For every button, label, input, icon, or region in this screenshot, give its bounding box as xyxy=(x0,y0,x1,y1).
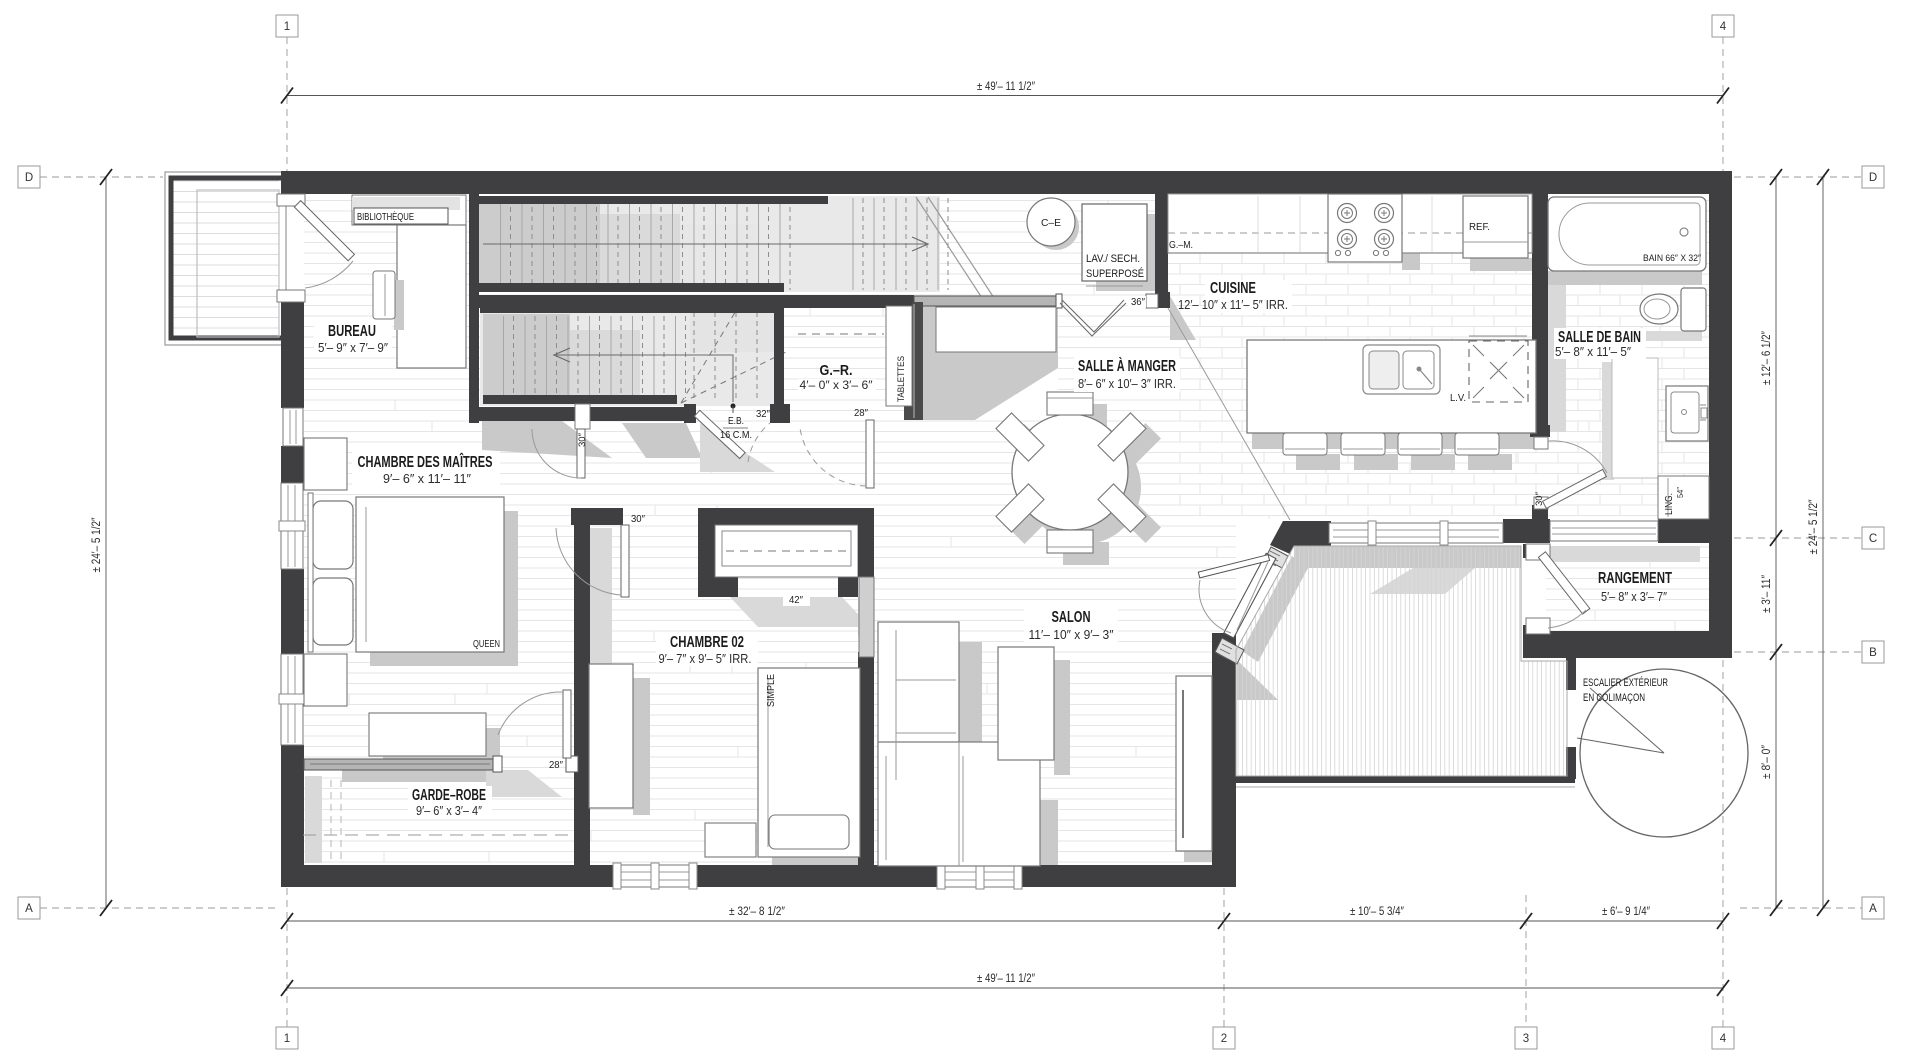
svg-text:G.–M.: G.–M. xyxy=(1169,239,1193,251)
svg-text:32″: 32″ xyxy=(756,409,770,420)
svg-text:LING.: LING. xyxy=(1664,493,1675,515)
svg-text:± 24′– 5 1/2″: ± 24′– 5 1/2″ xyxy=(91,518,103,573)
svg-text:QUEEN: QUEEN xyxy=(473,639,500,650)
svg-text:GARDE–ROBE: GARDE–ROBE xyxy=(412,787,486,804)
svg-text:± 49′– 11 1/2″: ± 49′– 11 1/2″ xyxy=(977,81,1035,93)
svg-text:SALLE À MANGER: SALLE À MANGER xyxy=(1078,356,1176,375)
svg-text:LAV./ SECH.: LAV./ SECH. xyxy=(1086,253,1140,265)
svg-text:BAIN 66″ X 32″: BAIN 66″ X 32″ xyxy=(1643,253,1702,264)
svg-text:2: 2 xyxy=(1221,1033,1227,1045)
svg-text:CHAMBRE DES MAÎTRES: CHAMBRE DES MAÎTRES xyxy=(358,452,493,471)
svg-text:A: A xyxy=(25,903,33,915)
svg-text:C–E: C–E xyxy=(1041,218,1061,229)
svg-text:1: 1 xyxy=(284,1033,290,1045)
svg-text:30″: 30″ xyxy=(631,514,645,525)
svg-text:5′– 9″ x 7′– 9″: 5′– 9″ x 7′– 9″ xyxy=(318,341,389,355)
svg-text:A: A xyxy=(1869,903,1877,915)
svg-text:8′– 6″ x 10′– 3″ IRR.: 8′– 6″ x 10′– 3″ IRR. xyxy=(1078,377,1176,391)
svg-text:BIBLIOTHÈQUE: BIBLIOTHÈQUE xyxy=(357,210,414,223)
svg-text:36″: 36″ xyxy=(1131,297,1145,308)
svg-text:B: B xyxy=(1869,647,1877,659)
svg-text:12′– 10″ x 11′– 5″ IRR.: 12′– 10″ x 11′– 5″ IRR. xyxy=(1178,298,1288,312)
svg-text:± 3′– 11″: ± 3′– 11″ xyxy=(1761,575,1773,613)
svg-text:G.–R.: G.–R. xyxy=(820,362,853,379)
svg-text:11′– 10″ x 9′– 3″: 11′– 10″ x 9′– 3″ xyxy=(1029,628,1115,642)
svg-text:4: 4 xyxy=(1720,1033,1727,1045)
svg-text:54″: 54″ xyxy=(1675,487,1685,498)
svg-text:± 8′– 0″: ± 8′– 0″ xyxy=(1761,745,1773,779)
svg-text:28″: 28″ xyxy=(549,760,563,771)
svg-text:30″: 30″ xyxy=(1534,491,1545,506)
svg-text:5′– 8″ x 11′– 5″: 5′– 8″ x 11′– 5″ xyxy=(1555,345,1632,359)
svg-text:C: C xyxy=(1869,533,1877,545)
svg-text:9′– 6″ x 3′– 4″: 9′– 6″ x 3′– 4″ xyxy=(416,804,483,818)
svg-text:D: D xyxy=(1869,172,1877,184)
svg-text:4: 4 xyxy=(1720,21,1727,33)
svg-text:± 32′– 8 1/2″: ± 32′– 8 1/2″ xyxy=(729,906,785,918)
svg-text:RANGEMENT: RANGEMENT xyxy=(1598,570,1672,587)
svg-text:ESCALIER EXTÉRIEUR: ESCALIER EXTÉRIEUR xyxy=(1583,676,1668,689)
svg-text:SIMPLE: SIMPLE xyxy=(766,674,777,707)
svg-text:5′– 8″ x 3′– 7″: 5′– 8″ x 3′– 7″ xyxy=(1601,590,1668,604)
svg-text:± 24′– 5 1/2″: ± 24′– 5 1/2″ xyxy=(1808,500,1820,555)
svg-text:E.B.: E.B. xyxy=(728,416,744,427)
svg-text:3: 3 xyxy=(1523,1033,1529,1045)
svg-text:TABLETTES: TABLETTES xyxy=(896,356,907,402)
svg-text:9′– 6″ x 11′– 11″: 9′– 6″ x 11′– 11″ xyxy=(383,472,472,486)
svg-text:SUPERPOSÉ: SUPERPOSÉ xyxy=(1086,267,1144,280)
svg-text:± 12′– 6 1/2″: ± 12′– 6 1/2″ xyxy=(1761,331,1773,385)
svg-text:CUISINE: CUISINE xyxy=(1210,280,1256,297)
svg-text:± 6′– 9 1/4″: ± 6′– 9 1/4″ xyxy=(1602,906,1650,918)
svg-text:CHAMBRE 02: CHAMBRE 02 xyxy=(670,634,744,651)
svg-text:1: 1 xyxy=(284,21,290,33)
svg-text:± 49′– 11 1/2″: ± 49′– 11 1/2″ xyxy=(977,973,1035,985)
svg-text:42″: 42″ xyxy=(789,595,803,606)
svg-text:± 10′– 5 3/4″: ± 10′– 5 3/4″ xyxy=(1350,906,1404,918)
svg-text:L.V.: L.V. xyxy=(1450,393,1466,404)
svg-text:BUREAU: BUREAU xyxy=(328,323,376,340)
svg-text:9′– 7″ x 9′– 5″ IRR.: 9′– 7″ x 9′– 5″ IRR. xyxy=(659,652,752,666)
svg-text:30″: 30″ xyxy=(577,432,588,447)
svg-text:D: D xyxy=(25,172,33,184)
svg-text:REF.: REF. xyxy=(1469,221,1490,233)
svg-text:EN COLIMAÇON: EN COLIMAÇON xyxy=(1583,692,1645,704)
svg-text:28″: 28″ xyxy=(854,408,868,419)
svg-text:SALLE DE BAIN: SALLE DE BAIN xyxy=(1558,329,1641,346)
svg-text:16 C.M.: 16 C.M. xyxy=(720,430,752,441)
svg-text:4′– 0″ x 3′– 6″: 4′– 0″ x 3′– 6″ xyxy=(800,378,874,392)
svg-text:SALON: SALON xyxy=(1052,609,1091,626)
